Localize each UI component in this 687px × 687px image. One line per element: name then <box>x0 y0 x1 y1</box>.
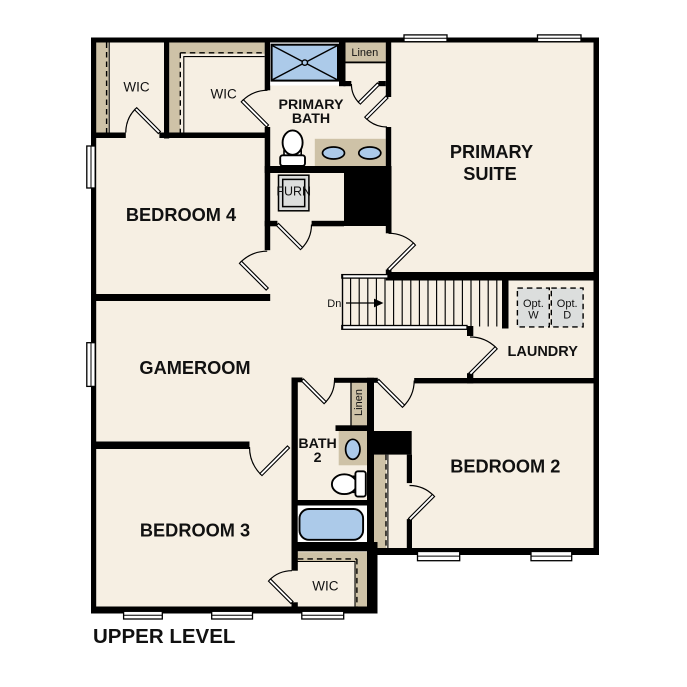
svg-text:Linen: Linen <box>351 47 378 59</box>
svg-text:WIC: WIC <box>210 87 236 102</box>
svg-text:BEDROOM 2: BEDROOM 2 <box>450 457 560 477</box>
svg-text:FURN: FURN <box>276 185 311 199</box>
svg-text:Dn: Dn <box>327 298 341 310</box>
svg-text:UPPER LEVEL: UPPER LEVEL <box>93 625 235 648</box>
svg-text:WIC: WIC <box>312 578 338 593</box>
svg-text:LAUNDRY: LAUNDRY <box>508 344 579 360</box>
svg-text:WIC: WIC <box>123 79 149 94</box>
svg-text:GAMEROOM: GAMEROOM <box>139 358 250 378</box>
svg-text:Linen: Linen <box>353 389 365 416</box>
svg-text:BEDROOM 4: BEDROOM 4 <box>126 205 237 225</box>
svg-text:BEDROOM 3: BEDROOM 3 <box>140 520 250 540</box>
